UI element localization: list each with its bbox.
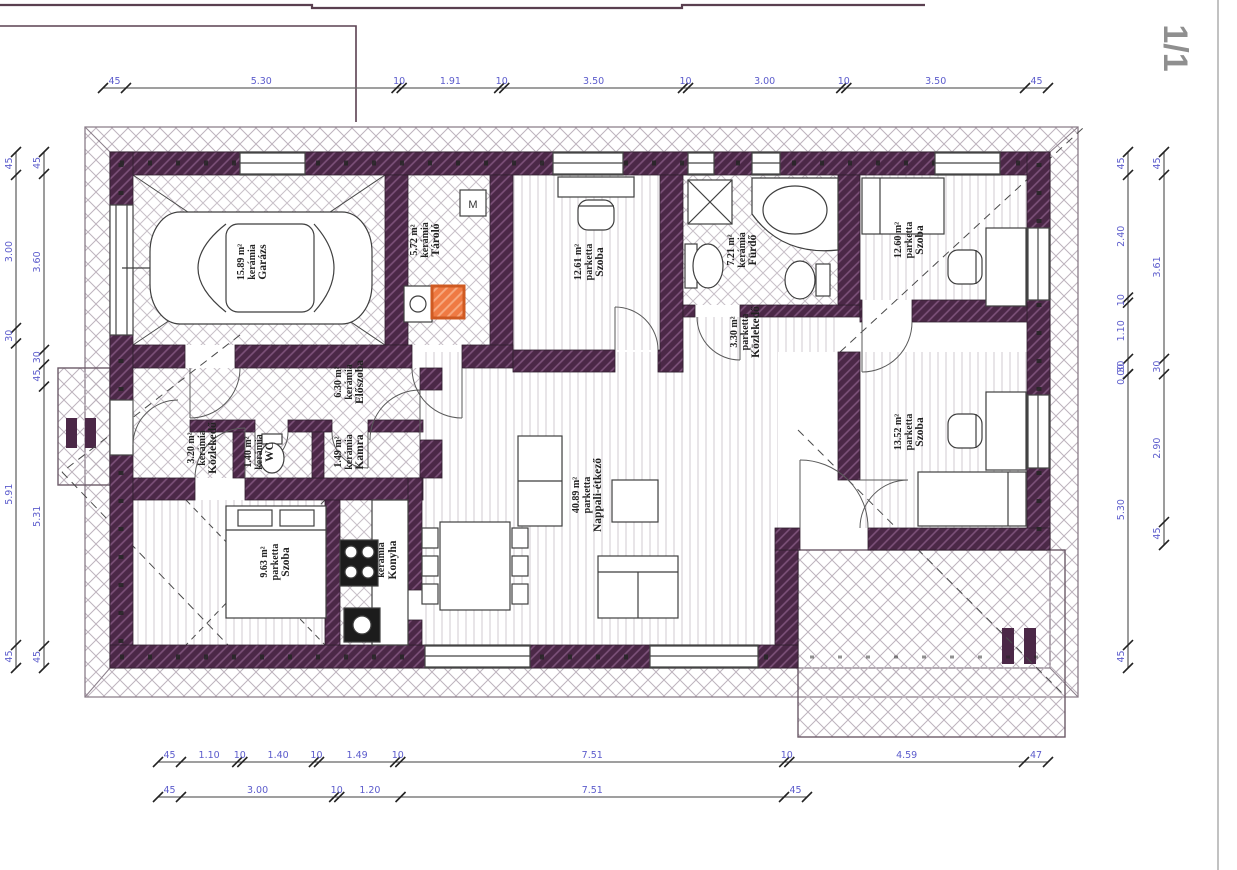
dimension-value: 10 — [393, 76, 405, 87]
room-label-line: Szoba — [914, 225, 926, 255]
dimension-value: 30 — [32, 351, 43, 363]
dimension-value: 5.30 — [1116, 499, 1127, 520]
room-label: kerámiaKonyha — [376, 540, 399, 579]
dimension-value: 10 — [310, 750, 322, 761]
room-label-line: Közlekedő — [750, 306, 762, 358]
dimension-value: 10 — [234, 750, 246, 761]
dimension-value: 45 — [789, 785, 801, 796]
porch-pillar — [66, 418, 77, 448]
coffee-table-icon — [612, 480, 658, 522]
dimension-value: 3.50 — [925, 76, 946, 87]
chair-icon — [578, 200, 614, 230]
entrance-door-opening — [110, 400, 133, 455]
dimension-value: 2.40 — [1116, 226, 1127, 247]
dimension-value: 2.90 — [1152, 438, 1163, 459]
dimension-value: 7.51 — [582, 785, 603, 796]
room-label-line: Fürdő — [747, 234, 759, 265]
dimension-value: 4.59 — [896, 750, 917, 761]
sheet-number: 1/1 — [1156, 24, 1194, 71]
dimension-value: 1.10 — [199, 750, 220, 761]
dimension-value: 30 — [1152, 361, 1163, 373]
room-label-line: 1.40 m² — [243, 436, 254, 467]
window — [425, 645, 530, 668]
porch-pillar — [85, 418, 96, 448]
room-label-line: kerámia — [376, 542, 387, 578]
room-label-line: Nappali-étkező — [592, 458, 604, 532]
svg-text:1/1: 1/1 — [1156, 24, 1194, 71]
kitchen-sink-icon — [344, 608, 380, 642]
dimension-value: 3.61 — [1152, 256, 1163, 277]
chimney-marker — [432, 286, 464, 318]
room-label-line: Kamra — [354, 434, 366, 469]
dimension-value: 45 — [1152, 157, 1163, 169]
dimension-value: 10 — [392, 750, 404, 761]
chair-icon — [948, 414, 982, 448]
dimension-value: 30 — [4, 330, 15, 342]
room-label-line: 6.30 m² — [333, 366, 344, 397]
dimension-value: 45 — [108, 76, 120, 87]
chair-icon — [948, 250, 982, 284]
toilet-icon — [785, 261, 830, 299]
room-label: 15.89 m²kerámiaGarázs — [236, 244, 269, 280]
dimension-value: 45 — [163, 785, 175, 796]
stove-icon — [340, 540, 378, 586]
dimension-value: 5.91 — [4, 484, 15, 505]
window — [650, 645, 758, 668]
dimension-value: 10 — [1116, 294, 1127, 306]
dimension-value: 45 — [1152, 527, 1163, 539]
dimension-value: 10 — [838, 76, 850, 87]
wall-east — [1027, 152, 1050, 550]
room-label-line: Szoba — [914, 417, 926, 447]
room-label-line: 40.89 m² — [571, 477, 582, 513]
dimension-value: 5.31 — [32, 506, 43, 527]
desk-icon — [986, 392, 1026, 470]
dimension-value: 45 — [1116, 157, 1127, 169]
room-label: 13.52 m²parkettaSzoba — [893, 414, 926, 451]
cabinet-icon — [518, 436, 562, 526]
dimension-value: 1.10 — [1116, 320, 1127, 341]
dimension-value: 3.00 — [754, 76, 775, 87]
dimension-value: 10 — [331, 785, 343, 796]
dimension-value: 10 — [496, 76, 508, 87]
dimension-value: 47 — [1030, 750, 1042, 761]
window — [935, 152, 1000, 175]
dimension-value: 3.50 — [583, 76, 604, 87]
bed-icon — [918, 472, 1026, 526]
room-label-line: 12.61 m² — [573, 244, 584, 280]
dimension-chain-left_inner: 453.6030455.3145 — [32, 147, 49, 673]
dimension-chain-left_outer: 453.00305.9145 — [4, 147, 21, 673]
garage-door — [110, 205, 133, 335]
dimension-chain-bottom_row1: 451.10101.40101.49107.51104.5947 — [153, 750, 1053, 767]
dimension-value: 45 — [32, 651, 43, 663]
dimension-value: 0.00 — [1116, 364, 1127, 385]
window — [1027, 395, 1050, 468]
room-label: 7.21 m²kerámiaFürdő — [726, 232, 759, 268]
shower-icon — [688, 180, 732, 224]
dimension-chain-right_inner: 452.40101.10300.005.3045 — [1116, 147, 1133, 673]
basin-icon — [404, 286, 432, 322]
entrance-porch — [58, 368, 110, 485]
dimension-value: 3.00 — [4, 241, 15, 262]
terrace-pillar — [1024, 628, 1036, 664]
room-label-line: Közlekedő — [207, 422, 219, 474]
washing-machine-icon: M — [460, 190, 486, 216]
room-label-line: 12.60 m² — [893, 222, 904, 258]
room-label-line: Garázs — [257, 244, 269, 280]
dimension-value: 45 — [163, 750, 175, 761]
window — [752, 152, 780, 175]
room-label-line: Szoba — [280, 547, 292, 577]
room-label: 12.60 m²parkettaSzoba — [893, 222, 926, 259]
dimension-chain-right_outer: 453.61302.9045 — [1152, 147, 1169, 550]
window — [1027, 228, 1050, 300]
terrace-pillar — [1002, 628, 1014, 664]
room-label-line: 13.52 m² — [893, 414, 904, 450]
dimension-value: 7.51 — [582, 750, 603, 761]
room-label-line: 5.72 m² — [409, 224, 420, 255]
dimension-value: 45 — [32, 157, 43, 169]
dimension-value: 3.60 — [32, 251, 43, 272]
room-label-line: WC — [264, 442, 276, 462]
dimension-chain-bottom_row2: 453.00101.207.5145 — [153, 785, 812, 802]
room-label-line: 1.49 m² — [333, 436, 344, 467]
dimension-value: 10 — [679, 76, 691, 87]
desk-icon — [986, 228, 1026, 306]
dimension-value: 3.00 — [247, 785, 268, 796]
window — [240, 152, 305, 175]
room-label: 1.49 m²kerámiaKamra — [333, 434, 366, 470]
dimension-value: 1.40 — [268, 750, 289, 761]
dimension-value: 10 — [781, 750, 793, 761]
dimension-value: 1.20 — [359, 785, 380, 796]
dimension-chain-top: 455.30101.91103.50103.00103.5045 — [98, 76, 1053, 93]
dimension-value: 45 — [4, 650, 15, 662]
room-label-line: Konyha — [387, 540, 399, 579]
dimension-value: 45 — [4, 157, 15, 169]
wall-terrace-west — [775, 550, 798, 645]
dimension-value: 45 — [32, 370, 43, 382]
room-label-line: 7.21 m² — [726, 234, 737, 265]
room-label-line: Szoba — [594, 247, 606, 277]
dimension-value: 1.91 — [440, 76, 461, 87]
floor-plan-canvas: 1/1 — [0, 0, 1237, 870]
window — [553, 152, 623, 175]
room-label: 6.30 m²kerámiaElőszoba — [333, 360, 366, 404]
room-label: 9.63 m²parkettaSzoba — [259, 544, 292, 581]
dimension-value: 45 — [1030, 76, 1042, 87]
room-label-line: Előszoba — [354, 360, 366, 404]
window — [688, 152, 714, 175]
room-label-line: Tároló — [430, 223, 442, 256]
room-label: 5.72 m²kerámiaTároló — [409, 222, 442, 258]
room-label-line: 9.63 m² — [259, 546, 270, 577]
room-label-line: 15.89 m² — [236, 244, 247, 280]
dimension-value: 45 — [1116, 650, 1127, 662]
terrace — [798, 550, 1065, 737]
dimension-value: 5.30 — [251, 76, 272, 87]
dining-table-icon — [422, 522, 528, 610]
desk-icon — [558, 177, 634, 197]
svg-text:M: M — [468, 199, 477, 211]
sofa-icon — [598, 556, 678, 618]
sink-icon — [685, 244, 723, 288]
room-label: 12.61 m²parkettaSzoba — [573, 244, 606, 281]
room-label-line: 3.20 m² — [186, 432, 197, 463]
room-label-line: 3.30 m² — [729, 316, 740, 347]
dimension-value: 1.49 — [347, 750, 368, 761]
